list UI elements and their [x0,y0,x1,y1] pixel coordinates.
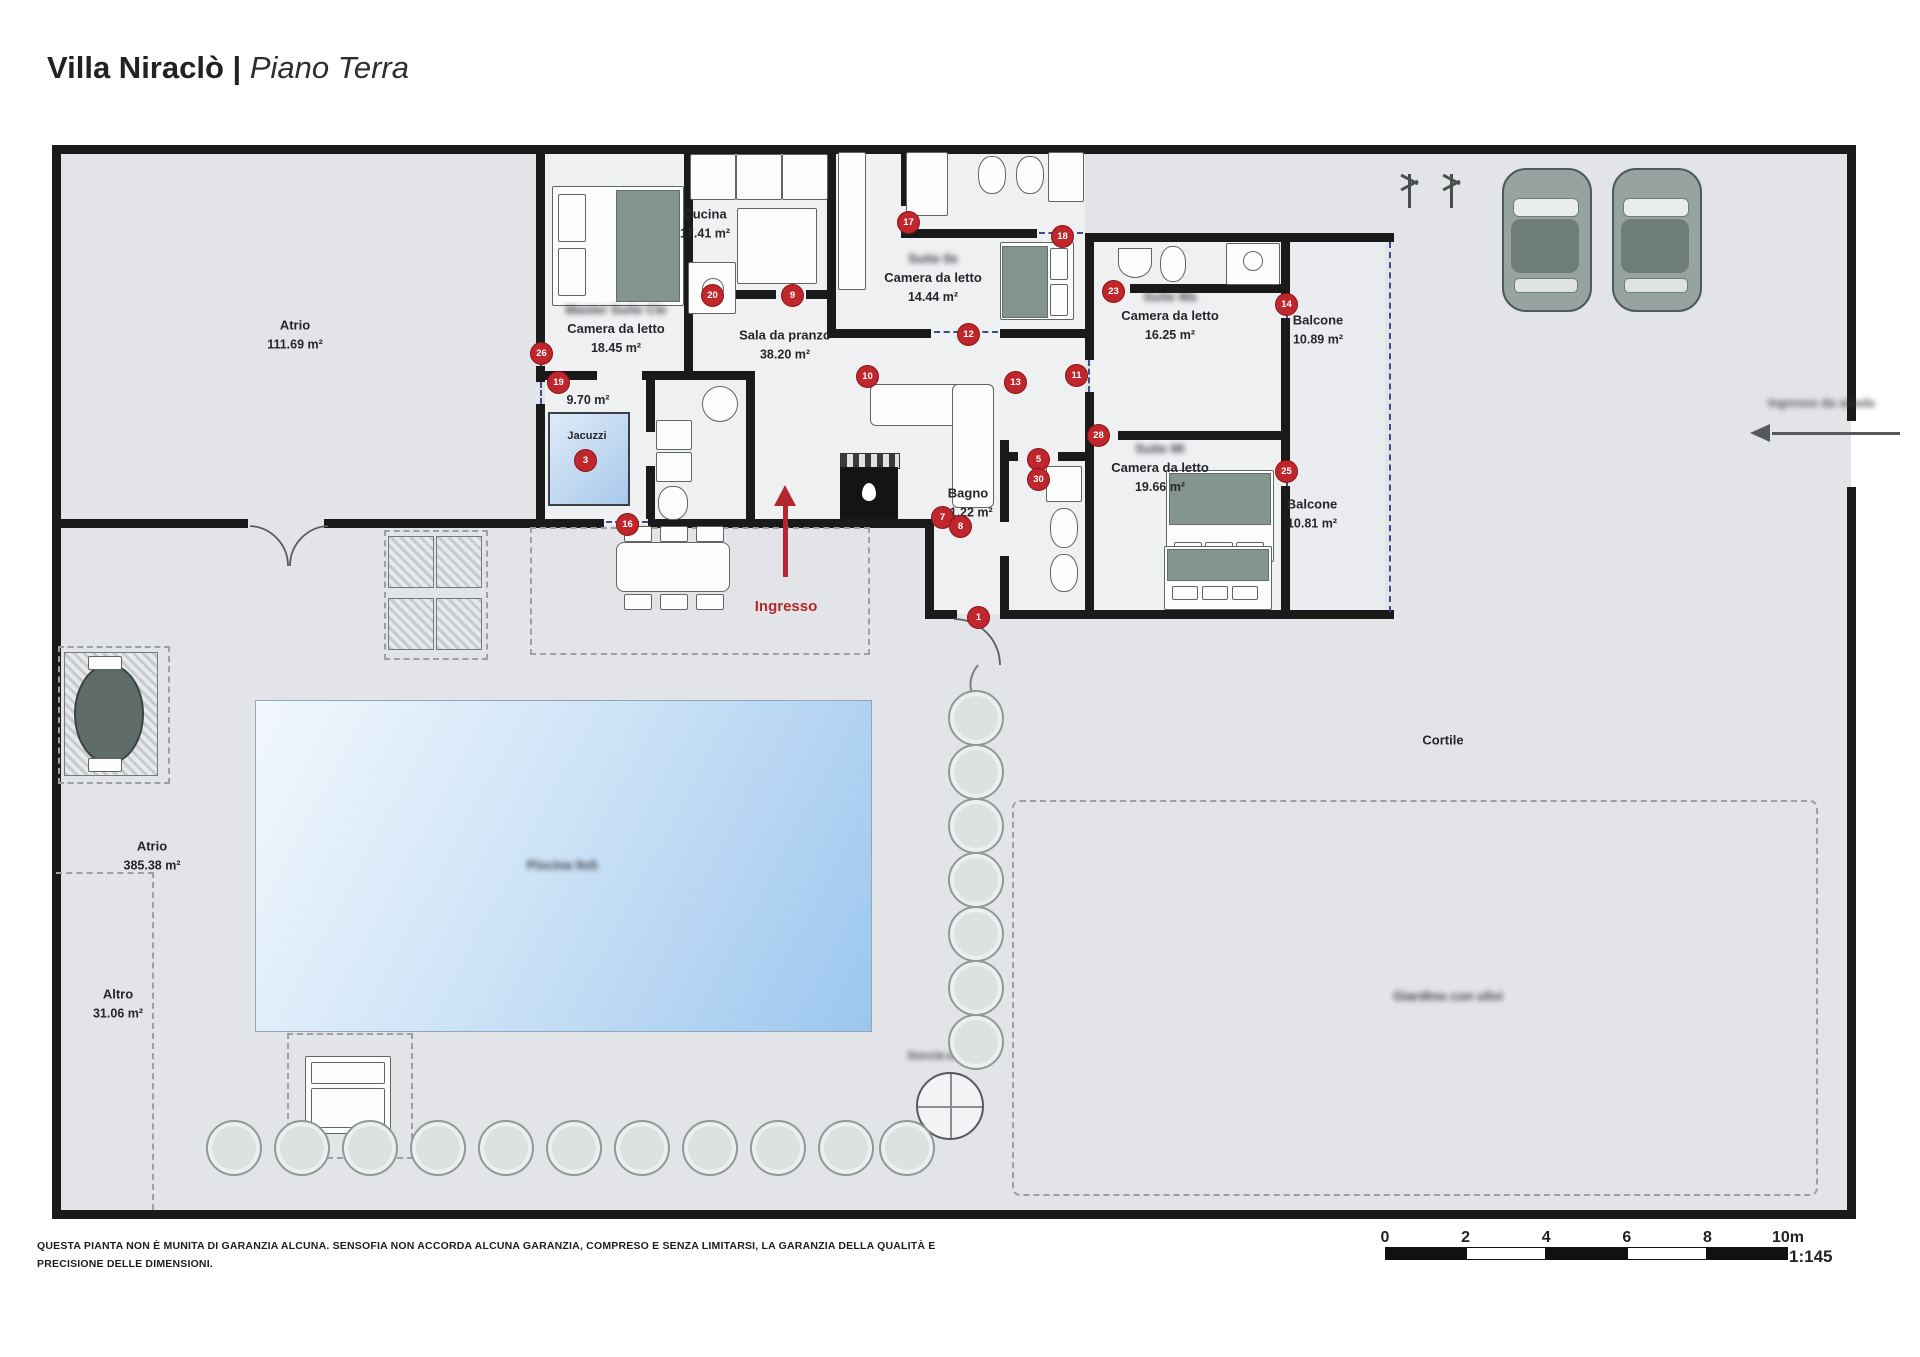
wall [831,329,931,338]
plan-element [1118,248,1152,278]
lamp-icon [1408,174,1411,208]
tree-icon [948,852,1004,908]
tree-icon [948,906,1004,962]
room-label-piscina: Piscina 9x5 [527,857,598,876]
disclaimer-line-2: PRECISIONE DELLE DIMENSIONI. [37,1255,936,1273]
door-badge-28: 28 [1087,424,1110,447]
plan-element [696,526,724,542]
plan-element [1088,360,1090,392]
door-badge-11: 11 [1065,364,1088,387]
plan-element [1172,586,1198,600]
plan-element [978,156,1006,194]
wall [536,366,545,382]
plan-element [1050,284,1068,316]
wall [642,371,755,380]
tree-icon [879,1120,935,1176]
plan-element [388,598,434,650]
entrance-arrow-shaft [783,505,788,577]
room-label-camera-3: Suite Ma Camera da letto16.25 m² [1121,288,1219,344]
plan-element [656,420,692,450]
wall [746,380,755,519]
scale-segment [1627,1247,1708,1260]
wall [52,145,1856,154]
street-arrow-icon [1750,424,1770,442]
scale-tick: 2 [1461,1229,1470,1247]
room-label-sala-pranzo: Sala da pranzo38.20 m² [739,327,831,364]
wall [1847,487,1856,1219]
room-label-cortile: Cortile [1422,732,1463,751]
plan-element [1202,586,1228,600]
car-1 [1502,168,1592,312]
tree-icon [410,1120,466,1176]
door-badge-9: 9 [781,284,804,307]
room-label-camera-2: Suite Ile Camera da letto14.44 m² [884,250,982,306]
plan-element [1232,586,1258,600]
room-label-cucina: Cucina17.41 m² [680,206,730,243]
scale-bar: 0246810m [1385,1229,1815,1289]
plan-element [690,154,736,200]
scale-ratio: 1:145 [1789,1247,1832,1267]
door-badge-18: 18 [1051,225,1074,248]
wall [536,148,545,344]
plan-element [660,526,688,542]
scale-tick: 10m [1772,1229,1804,1247]
wall [1000,556,1009,614]
entrance-label: Ingresso [755,598,818,615]
door-badge-17: 17 [897,211,920,234]
plan-element [616,542,730,592]
scale-segment [1707,1247,1788,1260]
plan-element [1016,156,1044,194]
wall [52,1210,1856,1219]
tree-icon [546,1120,602,1176]
page-title: Villa Niraclò | Piano Terra [47,50,409,86]
door-badge-20: 20 [701,284,724,307]
wall [536,404,545,528]
plan-element [1048,152,1084,202]
wall [56,519,248,528]
plan-element [656,452,692,482]
room-label-atrio-main: Atrio111.69 m² [267,317,323,354]
tree-icon [948,1014,1004,1070]
wall [1085,233,1394,242]
plan-element [1002,246,1048,318]
wall [1847,145,1856,421]
wall [1118,431,1283,440]
scale-tick: 0 [1381,1229,1390,1247]
plan-element [624,594,652,610]
room-label-giardino: Giardino con ulivi [1393,988,1503,1007]
scale-tick: 8 [1703,1229,1712,1247]
disclaimer-text: QUESTA PIANTA NON È MUNITA DI GARANZIA A… [37,1237,936,1274]
room-label-camera-4: Suite Mi Camera da letto19.66 m² [1111,440,1209,496]
tree-icon [342,1120,398,1176]
plan-element [558,248,586,296]
plan-element [388,536,434,588]
room-label-balcone-2: Balcone10.81 m² [1287,496,1338,533]
plan-element [88,656,122,670]
door-badge-23: 23 [1102,280,1125,303]
room-label-camera-master: Master Suite Cle Camera da letto18.45 m² [565,301,666,357]
door-badge-25: 25 [1275,460,1298,483]
plan-element [88,758,122,772]
wall [806,290,827,299]
disclaimer-line-1: QUESTA PIANTA NON È MUNITA DI GARANZIA A… [37,1237,936,1255]
lamp-icon [1450,174,1453,208]
tree-icon [750,1120,806,1176]
fireplace [840,467,898,519]
plan-element [737,208,817,284]
plan-element [906,152,948,216]
wall [901,229,1037,238]
tree-icon [948,690,1004,746]
wall [1281,318,1290,464]
door-badge-19: 19 [547,371,570,394]
scale-tick: 6 [1622,1229,1631,1247]
plan-element [660,594,688,610]
door-badge-3: 3 [574,449,597,472]
wall [1000,452,1018,461]
door-badge-12: 12 [957,323,980,346]
floor-plan-canvas: Villa Niraclò | Piano Terra [0,0,1920,1357]
door-badge-30: 30 [1027,468,1050,491]
plan-element [540,382,542,404]
door-badge-14: 14 [1275,293,1298,316]
plan-element [736,154,782,200]
room-label-disimpegno: 9.70 m² [566,391,609,409]
plan-element [152,872,154,1210]
wall [1000,329,1085,338]
plan-element [1167,549,1269,581]
plan-element [1050,554,1078,592]
tree-icon [478,1120,534,1176]
plan-element [616,190,680,302]
plan-element [1050,248,1068,280]
scale-segment [1466,1247,1547,1260]
door-badge-13: 13 [1004,371,1027,394]
tree-icon [948,744,1004,800]
room-label-altro: Altro31.06 m² [93,986,143,1023]
flame-icon [862,483,876,501]
plan-element [1050,508,1078,548]
street-arrow-shaft [1772,432,1900,435]
tree-icon [682,1120,738,1176]
door-badge-26: 26 [530,342,553,365]
tree-icon [614,1120,670,1176]
plan-element [658,486,688,520]
door-badge-8: 8 [949,515,972,538]
wall [925,519,934,614]
wall [1058,452,1085,461]
wall [925,610,957,619]
wall [324,519,545,528]
plan-element [782,154,828,200]
title-divider: | [233,50,242,85]
tree-icon [948,798,1004,854]
door-badge-1: 1 [967,606,990,629]
room-label-balcone-1: Balcone10.89 m² [1293,312,1344,349]
title-floor-name: Piano Terra [250,50,409,85]
plan-element [558,194,586,242]
title-villa-name: Villa Niraclò [47,50,224,85]
plan-element [1389,242,1391,612]
car-2 [1612,168,1702,312]
wall [1000,610,1394,619]
tree-icon [818,1120,874,1176]
room-label-jacuzzi: Jacuzzi [567,429,606,445]
tree-icon [948,960,1004,1016]
plan-element [838,152,866,290]
plan-element [74,664,144,764]
plan-element [702,386,738,422]
plan-element [1046,466,1082,502]
scale-tick: 4 [1542,1229,1551,1247]
door-badge-16: 16 [616,513,639,536]
room-label-atrio-2: Atrio385.38 m² [124,838,181,875]
tree-icon [206,1120,262,1176]
entrance-arrow-icon [774,485,796,506]
wall [646,466,655,519]
plan-element [1243,251,1263,271]
wall [646,380,655,432]
tree-icon [274,1120,330,1176]
scale-segment [1385,1247,1466,1260]
plan-element [436,598,482,650]
plan-element [1285,238,1385,614]
door-badge-10: 10 [856,365,879,388]
wall [827,148,836,338]
plan-element [436,536,482,588]
scale-segment [1546,1247,1627,1260]
plan-element [311,1062,385,1084]
plan-element [696,594,724,610]
wall [1085,242,1094,360]
street-entrance-label: Ingresso da strada [1768,396,1918,410]
plan-element [1160,246,1186,282]
